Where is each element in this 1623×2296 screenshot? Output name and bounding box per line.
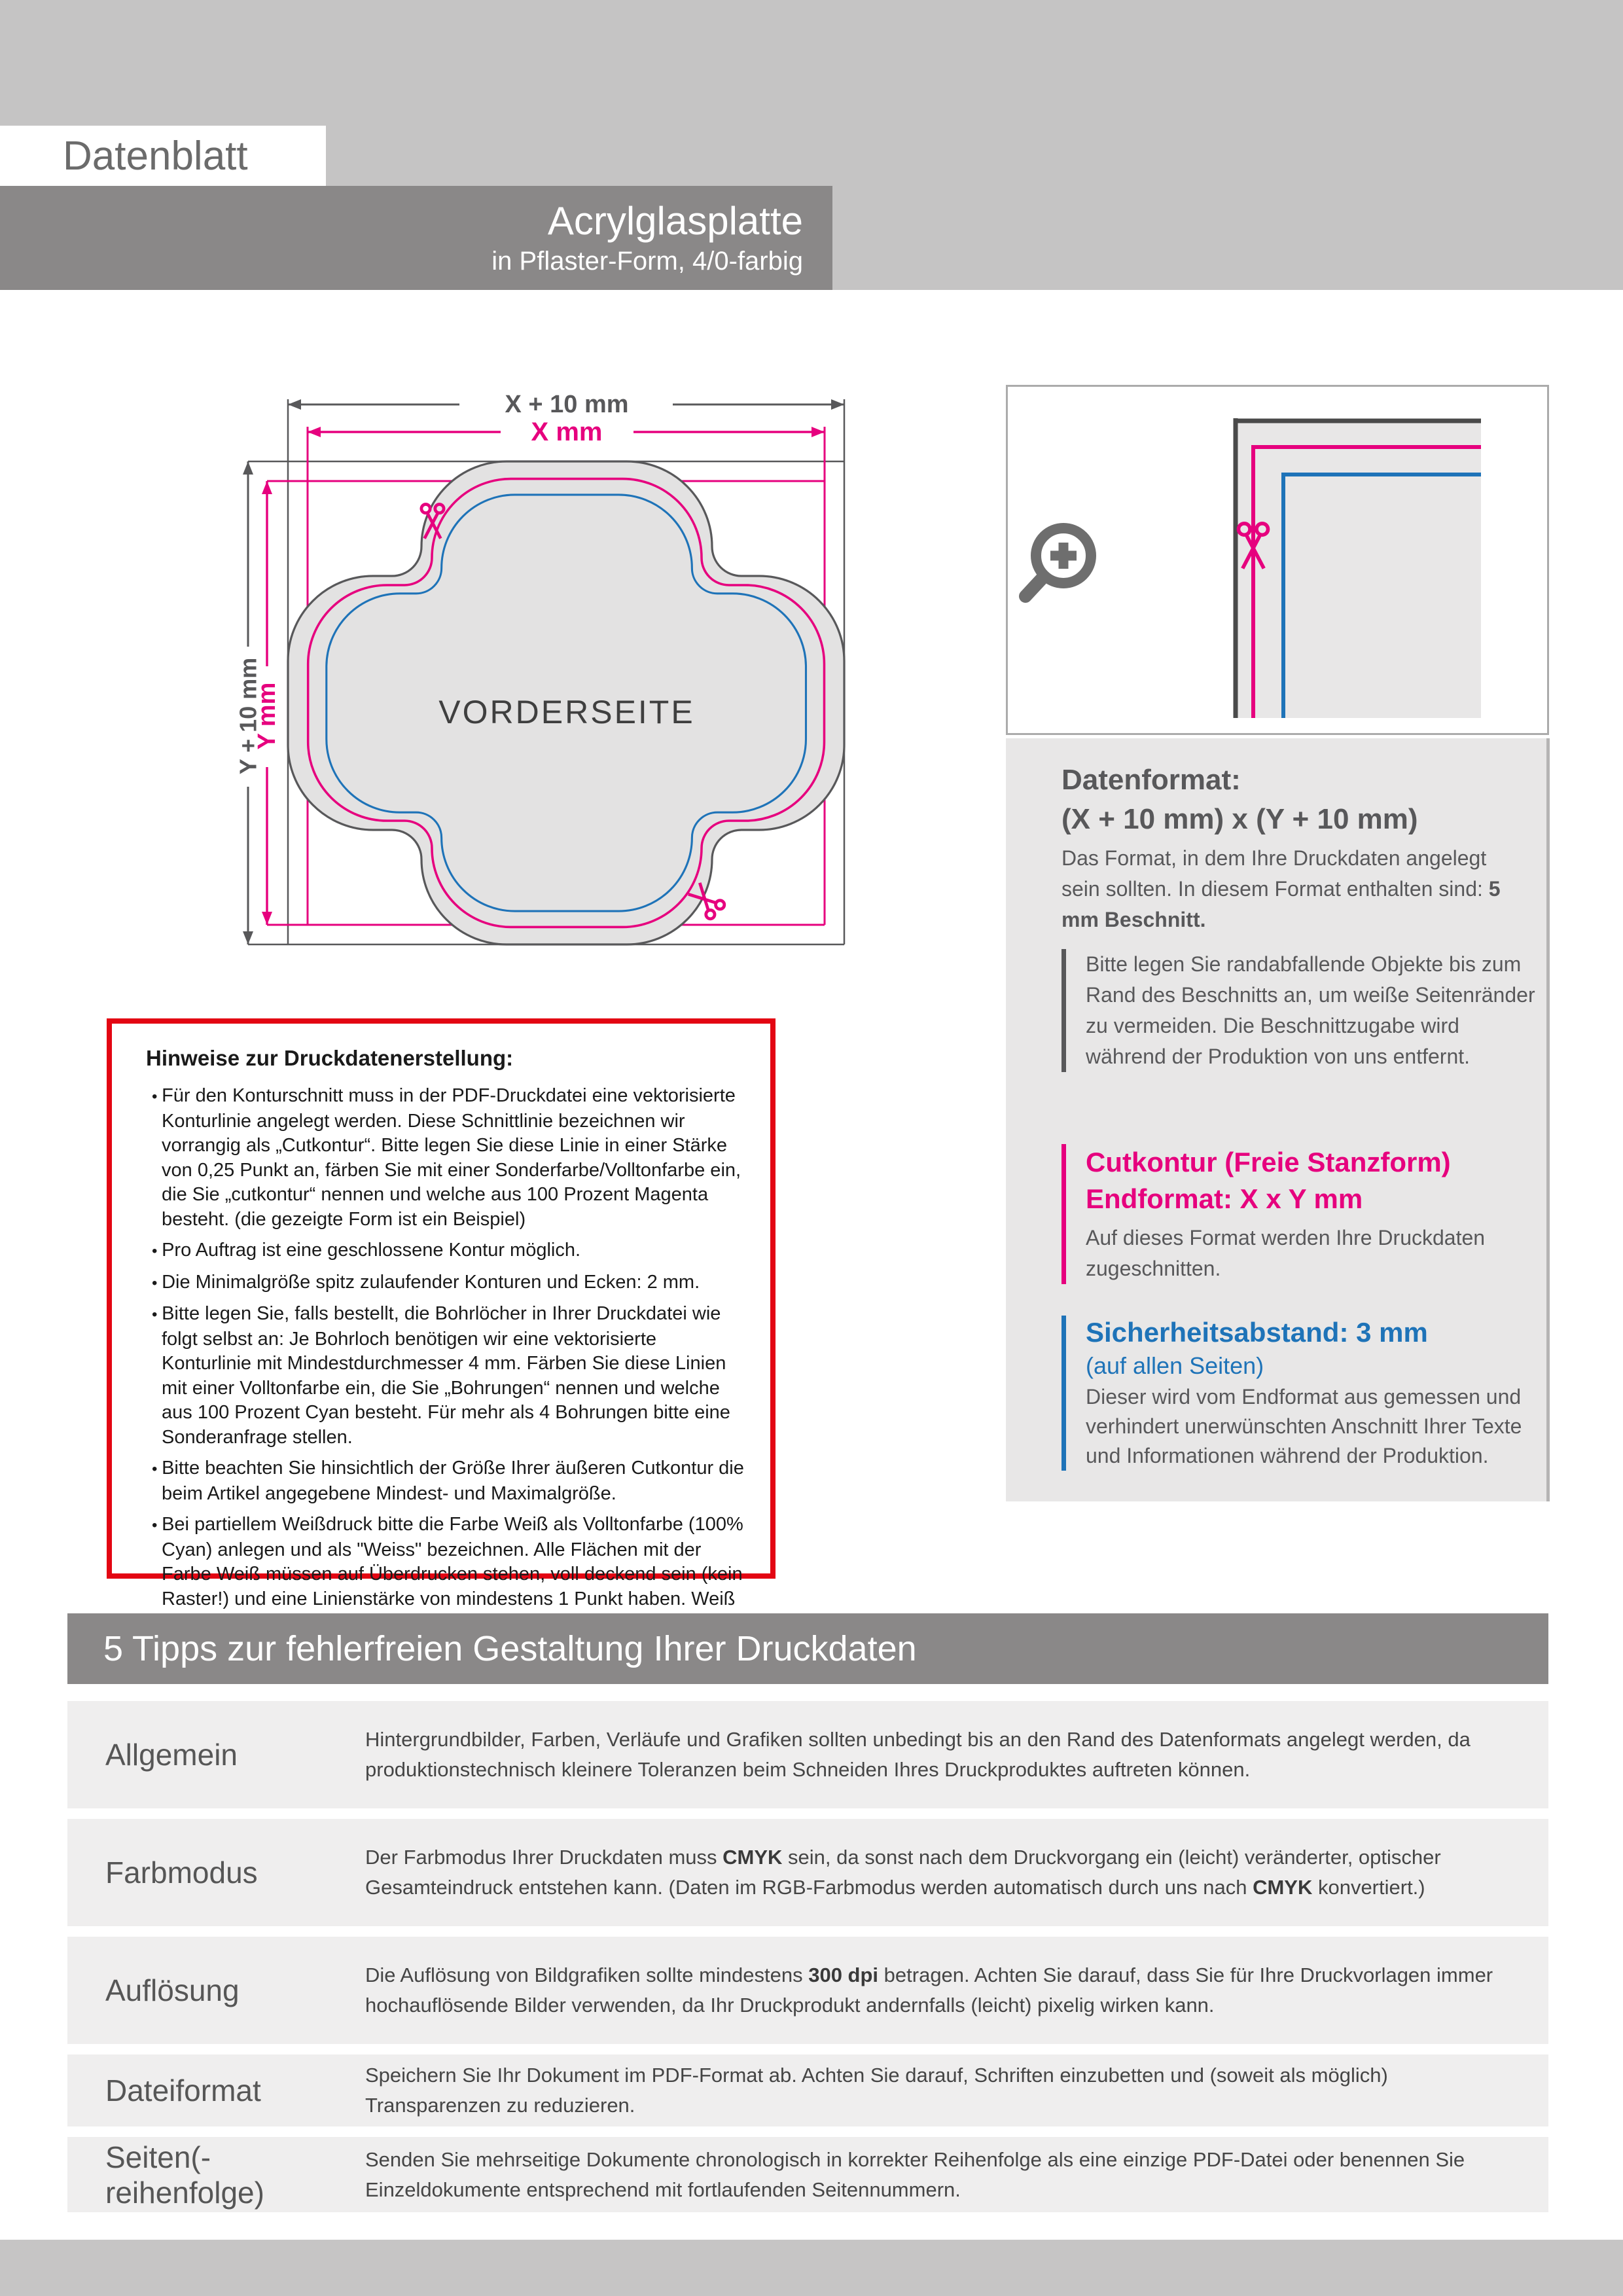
tip-row-aufloesung: Auflösung Die Auflösung von Bildgrafiken… [67, 1937, 1548, 2044]
tip-label: Farbmodus [67, 1855, 365, 1890]
tip-label: Allgemein [67, 1737, 365, 1772]
bleed-area-fill [1236, 420, 1481, 718]
pflaster-shape-diagram: X + 10 mm X mm Y + 10 mm Y mm [229, 380, 857, 969]
tips-banner-title: 5 Tipps zur fehlerfreien Gestaltung Ihre… [67, 1628, 917, 1669]
format-info-panel: Datenformat: (X + 10 mm) x (Y + 10 mm) D… [1006, 738, 1550, 1501]
cutkontur-block: Cutkontur (Freie Stanzform) Endformat: X… [1061, 1144, 1544, 1284]
tip-row-allgemein: Allgemein Hintergrundbilder, Farben, Ver… [67, 1701, 1548, 1808]
tip-row-farbmodus: Farbmodus Der Farbmodus Ihrer Druckdaten… [67, 1819, 1548, 1926]
tip-row-dateiformat: Dateiformat Speichern Sie Ihr Dokument i… [67, 2054, 1548, 2126]
datasheet-page: Datenblatt Acrylglasplatte in Pflaster-F… [0, 0, 1623, 2296]
cutkontur-title-line1: Cutkontur (Freie Stanzform) [1086, 1144, 1544, 1181]
datenformat-body: Das Format, in dem Ihre Druckdaten angel… [1061, 843, 1513, 935]
sicherheitsabstand-title: Sicherheitsabstand: 3 mm [1086, 1316, 1544, 1350]
corner-detail-drawing [1008, 387, 1547, 733]
tip-text: Hintergrundbilder, Farben, Verläufe und … [365, 1725, 1548, 1785]
cutkontur-title-line2: Endformat: X x Y mm [1086, 1181, 1544, 1217]
note-item: Bitte legen Sie, falls bestellt, die Boh… [146, 1302, 744, 1450]
sicherheitsabstand-body: Dieser wird vom Endformat aus gemessen u… [1086, 1382, 1544, 1471]
dim-x-inner: X mm [308, 418, 825, 446]
print-data-notes-box: Hinweise zur Druckdatenerstellung: Für d… [107, 1018, 776, 1579]
sicherheitsabstand-block: Sicherheitsabstand: 3 mm (auf allen Seit… [1061, 1316, 1544, 1471]
tip-text: Senden Sie mehrseitige Dokumente chronol… [365, 2145, 1548, 2205]
corner-detail-box [1006, 385, 1549, 735]
tip-label: Dateiformat [67, 2073, 365, 2108]
bleed-note-block: Bitte legen Sie randabfallende Objekte b… [1061, 949, 1544, 1072]
front-side-label: VORDERSEITE [438, 694, 694, 730]
tip-text: Der Farbmodus Ihrer Druckdaten muss CMYK… [365, 1842, 1548, 1903]
cutkontur-body: Auf dieses Format werden Ihre Druckdaten… [1086, 1223, 1544, 1284]
dim-y-inner: Y mm [253, 481, 281, 925]
bleed-note-text: Bitte legen Sie randabfallende Objekte b… [1086, 949, 1544, 1072]
dim-x-inner-label: X mm [531, 418, 603, 446]
tip-row-seitenreihenfolge: Seiten(-reihenfolge) Senden Sie mehrseit… [67, 2137, 1548, 2212]
product-subtitle: in Pflaster-Form, 4/0-farbig [491, 244, 803, 278]
tip-text: Die Auflösung von Bildgrafiken sollte mi… [365, 1960, 1548, 2020]
dim-y-inner-label: Y mm [253, 683, 281, 750]
dim-x-outer-label: X + 10 mm [505, 391, 628, 418]
note-item: Für den Konturschnitt muss in der PDF-Dr… [146, 1084, 744, 1232]
note-item: Bitte beachten Sie hinsichtlich der Größ… [146, 1456, 744, 1506]
doc-label: Datenblatt [0, 133, 248, 179]
note-item: Die Minimalgröße spitz zulaufender Kontu… [146, 1270, 744, 1296]
tip-label: Seiten(-reihenfolge) [67, 2140, 365, 2210]
tip-text: Speichern Sie Ihr Dokument im PDF-Format… [365, 2060, 1548, 2121]
tips-banner: 5 Tipps zur fehlerfreien Gestaltung Ihre… [67, 1613, 1548, 1684]
tip-label: Auflösung [67, 1973, 365, 2008]
doc-label-box: Datenblatt [0, 126, 326, 186]
dim-x-outer: X + 10 mm [288, 391, 844, 418]
datenformat-formula: (X + 10 mm) x (Y + 10 mm) [1061, 800, 1520, 839]
bottom-gray-band [0, 2240, 1623, 2296]
note-item: Pro Auftrag ist eine geschlossene Kontur… [146, 1238, 744, 1264]
datenformat-title: Datenformat: [1061, 761, 1520, 800]
notes-list: Für den Konturschnitt muss in der PDF-Dr… [146, 1084, 744, 1636]
sicherheitsabstand-subtitle: (auf allen Seiten) [1086, 1350, 1544, 1382]
product-title-bar: Acrylglasplatte in Pflaster-Form, 4/0-fa… [0, 186, 832, 290]
product-title: Acrylglasplatte [548, 198, 803, 244]
notes-title: Hinweise zur Druckdatenerstellung: [146, 1043, 744, 1073]
magnifier-plus-icon [1026, 528, 1091, 596]
datenformat-block: Datenformat: (X + 10 mm) x (Y + 10 mm) D… [1061, 761, 1520, 935]
